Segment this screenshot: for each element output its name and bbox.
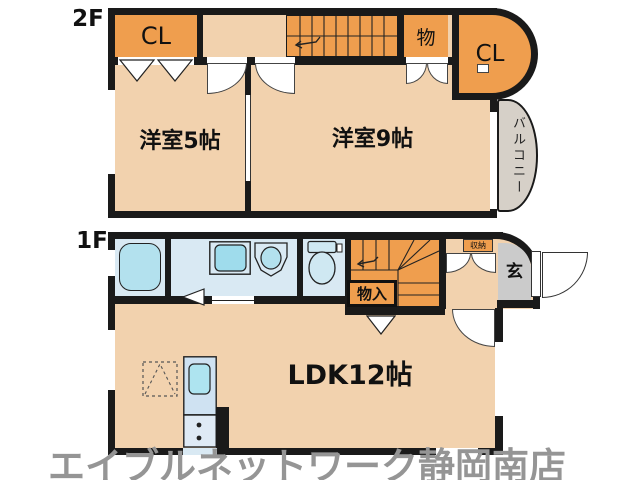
partition-window xyxy=(245,95,251,181)
balcony: バルコニー xyxy=(497,99,538,212)
floor1-label: 1F xyxy=(70,228,114,254)
balcony-label: バルコニー xyxy=(508,116,527,196)
sliding-door-icon xyxy=(212,300,254,301)
kitchen-counter-icon xyxy=(183,356,217,448)
refrigerator-icon xyxy=(142,361,178,397)
floor2-closet-left: CL xyxy=(115,15,197,57)
watermark-text: エイブルネットワーク静岡南店 xyxy=(48,436,608,480)
window xyxy=(490,112,497,209)
floor1-storage: 物入 xyxy=(347,280,397,307)
entrance-label: 玄 xyxy=(506,257,523,282)
stove-burner xyxy=(197,423,202,428)
door-mark-icon xyxy=(477,64,489,73)
shoe-storage: 収納 xyxy=(463,239,493,252)
wall-segment xyxy=(245,181,251,211)
window xyxy=(495,342,503,416)
floor2-closet-left-label: CL xyxy=(141,22,171,50)
floor2-closet-right: CL xyxy=(452,8,538,100)
washing-machine-icon xyxy=(209,241,251,275)
toilet-icon xyxy=(306,240,343,288)
wall-segment xyxy=(345,307,445,315)
door-fold-icon xyxy=(366,315,396,335)
floorplan-canvas: 2F CL CL 物 xyxy=(0,0,640,480)
entrance-door-swing-icon xyxy=(542,252,588,298)
room-small-label: 洋室5帖 xyxy=(115,128,245,156)
ldk-label: LDK12帖 xyxy=(255,360,445,390)
floor2-storage: 物 xyxy=(404,15,448,57)
floor1-storage-label: 物入 xyxy=(357,283,387,304)
wall-segment xyxy=(440,239,446,309)
door-fold-icon xyxy=(181,288,205,306)
floor2-label: 2F xyxy=(66,6,110,32)
bathtub-icon xyxy=(119,243,161,291)
wall-segment xyxy=(497,300,540,308)
floor2-storage-label: 物 xyxy=(416,23,435,50)
window xyxy=(108,330,115,390)
entrance-door xyxy=(531,251,541,297)
bifold-door-icon xyxy=(118,59,194,83)
window xyxy=(108,90,115,174)
wall-segment xyxy=(197,15,203,57)
washbasin-icon xyxy=(254,242,288,280)
stairs-2f-icon xyxy=(286,15,398,57)
room-large-label: 洋室9帖 xyxy=(295,126,450,154)
shoe-storage-label: 収納 xyxy=(470,240,486,251)
